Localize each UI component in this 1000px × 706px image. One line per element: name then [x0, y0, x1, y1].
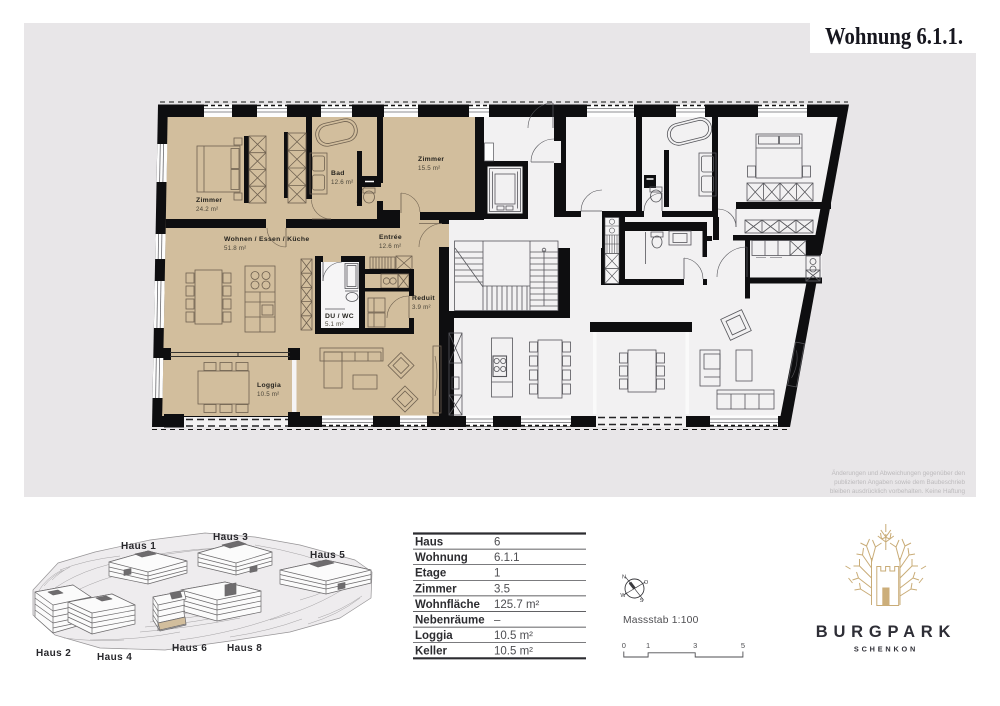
svg-text:Zimmer: Zimmer: [418, 156, 444, 163]
svg-text:publizierten Angaben sowie dem: publizierten Angaben sowie dem Baubeschr…: [834, 479, 965, 486]
svg-text:Nebenräume: Nebenräume: [415, 615, 485, 627]
svg-text:Haus 4: Haus 4: [97, 652, 132, 663]
svg-text:5.1 m²: 5.1 m²: [325, 321, 344, 328]
svg-text:Keller: Keller: [415, 646, 447, 658]
svg-text:bleiben ausdrücklich vorbehalt: bleiben ausdrücklich vorbehalten. Keine …: [830, 488, 966, 495]
svg-text:Wohnung 6.1.1.: Wohnung 6.1.1.: [825, 23, 963, 50]
svg-text:0: 0: [622, 641, 626, 650]
svg-text:10.5 m²: 10.5 m²: [494, 646, 533, 658]
svg-text:Bad: Bad: [331, 170, 345, 177]
svg-text:Haus 6: Haus 6: [172, 643, 207, 654]
svg-text:S: S: [640, 598, 644, 604]
svg-text:O: O: [644, 580, 649, 586]
svg-text:Haus 3: Haus 3: [213, 532, 248, 543]
svg-text:Etage: Etage: [415, 568, 446, 580]
svg-text:–: –: [494, 615, 501, 627]
svg-text:Haus 2: Haus 2: [36, 648, 71, 659]
svg-text:15.5 m²: 15.5 m²: [418, 165, 440, 172]
svg-text:Haus 1: Haus 1: [121, 541, 156, 552]
svg-text:Wohnung: Wohnung: [415, 552, 468, 564]
svg-text:Haus 5: Haus 5: [310, 550, 345, 561]
svg-text:Reduit: Reduit: [412, 295, 435, 302]
svg-text:SCHENKON: SCHENKON: [854, 645, 918, 654]
svg-text:N: N: [622, 575, 626, 581]
svg-text:DU / WC: DU / WC: [325, 313, 354, 320]
svg-text:Entrée: Entrée: [379, 234, 402, 241]
svg-text:1: 1: [646, 641, 650, 650]
svg-text:BURGPARK: BURGPARK: [816, 623, 957, 641]
svg-text:24.2 m²: 24.2 m²: [196, 206, 218, 213]
svg-text:Loggia: Loggia: [257, 382, 281, 389]
svg-text:Wohnen / Essen / Küche: Wohnen / Essen / Küche: [224, 236, 309, 243]
svg-text:3.9 m²: 3.9 m²: [412, 304, 431, 311]
svg-text:Haus: Haus: [415, 537, 443, 549]
svg-text:Loggia: Loggia: [415, 630, 453, 642]
svg-text:12.6 m²: 12.6 m²: [331, 179, 353, 186]
svg-text:3: 3: [693, 641, 697, 650]
svg-text:12.6 m²: 12.6 m²: [379, 243, 401, 250]
svg-text:Änderungen und Abweichungen ge: Änderungen und Abweichungen gegenüber de…: [832, 469, 966, 477]
svg-text:5: 5: [741, 641, 745, 650]
svg-text:Wohnfläche: Wohnfläche: [415, 599, 480, 611]
svg-text:6.1.1: 6.1.1: [494, 552, 520, 564]
svg-text:Zimmer: Zimmer: [196, 197, 222, 204]
svg-text:3.5: 3.5: [494, 583, 510, 595]
svg-text:1: 1: [494, 568, 500, 580]
svg-text:10.5 m²: 10.5 m²: [257, 391, 279, 398]
svg-text:6: 6: [494, 537, 500, 549]
svg-text:Haus 8: Haus 8: [227, 643, 262, 654]
svg-text:125.7 m²: 125.7 m²: [494, 599, 540, 611]
svg-text:Zimmer: Zimmer: [415, 583, 457, 595]
svg-text:10.5 m²: 10.5 m²: [494, 630, 533, 642]
svg-text:Massstab 1:100: Massstab 1:100: [623, 615, 699, 626]
svg-text:W: W: [620, 593, 626, 599]
svg-text:51.8 m²: 51.8 m²: [224, 245, 246, 252]
